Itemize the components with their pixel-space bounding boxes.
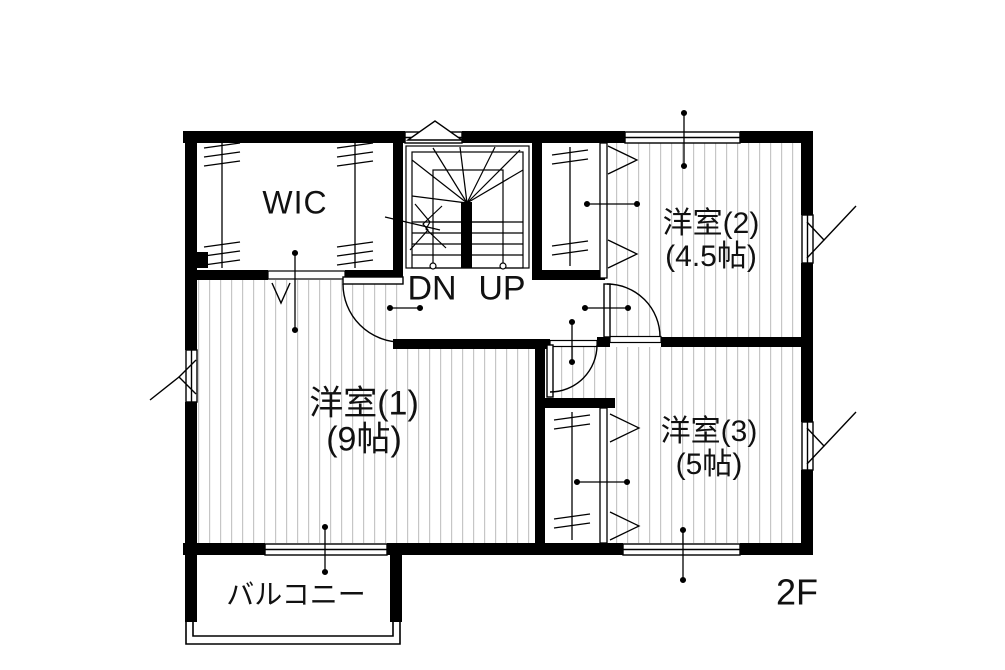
room2-south-wall bbox=[661, 337, 813, 347]
closet2-front bbox=[600, 143, 607, 278]
wall bbox=[801, 470, 813, 555]
casement-arrow-icon bbox=[824, 412, 856, 446]
balcony-railing bbox=[186, 622, 400, 644]
wic-label: WIC bbox=[262, 186, 327, 221]
wic-opening bbox=[268, 271, 345, 279]
measure-dot bbox=[570, 320, 575, 325]
casement-arrow-icon bbox=[150, 377, 179, 400]
pillar bbox=[195, 252, 208, 268]
wall bbox=[185, 131, 197, 350]
closet2-south-wall bbox=[532, 270, 605, 280]
measure-dot bbox=[682, 111, 687, 116]
room1-east-wall bbox=[535, 339, 545, 555]
room3-door-leaf bbox=[547, 345, 553, 397]
roof-vent-triangle-icon bbox=[408, 121, 462, 140]
measure-dot bbox=[293, 251, 298, 256]
hallway-south-wall bbox=[393, 339, 550, 349]
stair-tread bbox=[433, 148, 467, 203]
railing-outer bbox=[186, 622, 400, 644]
measure-dot bbox=[635, 202, 640, 207]
room2-door-threshold bbox=[610, 337, 661, 343]
measure-dot bbox=[682, 164, 687, 169]
room1-label: 洋室(1) bbox=[309, 386, 419, 423]
stair-marker-dot bbox=[430, 263, 436, 269]
balcony-label: バルコニー bbox=[226, 580, 365, 610]
casement-arrow-icon bbox=[824, 206, 856, 240]
wall bbox=[801, 131, 813, 215]
measure-dot bbox=[575, 480, 580, 485]
room2-label: 洋室(2) bbox=[663, 208, 760, 240]
stair-divider-wall bbox=[461, 202, 472, 268]
stair-marker-dot bbox=[500, 263, 506, 269]
measure-dot bbox=[323, 525, 328, 530]
stair-tread bbox=[460, 147, 467, 203]
stairs-east-wall bbox=[532, 131, 542, 280]
room1-door-leaf bbox=[343, 277, 403, 284]
room2-size: (4.5帖) bbox=[665, 241, 757, 273]
room3-size: (5帖) bbox=[676, 449, 743, 481]
measure-dot bbox=[585, 202, 590, 207]
wall bbox=[740, 543, 813, 555]
floorplan-drawing bbox=[0, 0, 1005, 670]
measure-dot bbox=[681, 578, 686, 583]
room3-door-threshold bbox=[550, 341, 597, 347]
room2-door-leaf bbox=[604, 284, 610, 337]
wall bbox=[183, 131, 405, 143]
balcony-right-wall bbox=[390, 555, 402, 622]
floor-label: 2F bbox=[776, 574, 818, 613]
measure-dot bbox=[293, 328, 298, 333]
measure-dot bbox=[323, 570, 328, 575]
wall bbox=[387, 543, 623, 555]
room1-size: (9帖) bbox=[326, 422, 402, 459]
measure-dot bbox=[583, 306, 588, 311]
wall-stub bbox=[597, 337, 610, 347]
measure-dot bbox=[626, 306, 631, 311]
stair-break-mark bbox=[415, 204, 446, 248]
measure-dot bbox=[681, 528, 686, 533]
measure-dot bbox=[388, 306, 393, 311]
stairs-down-label: DN bbox=[407, 271, 456, 308]
stairs-west-wall bbox=[393, 131, 403, 280]
wic-south-wall bbox=[190, 270, 268, 280]
wall bbox=[183, 543, 265, 555]
floorplan-canvas: WIC DN UP 洋室(2) (4.5帖) 洋室(1) (9帖) 洋室(3) … bbox=[0, 0, 1005, 670]
wall bbox=[462, 131, 625, 143]
closet3-front bbox=[600, 408, 607, 543]
railing-inner bbox=[193, 622, 393, 636]
room3-label: 洋室(3) bbox=[661, 416, 758, 448]
measure-dot bbox=[570, 360, 575, 365]
stairs-up-label: UP bbox=[478, 271, 525, 308]
wall bbox=[185, 402, 197, 622]
staircase bbox=[385, 146, 529, 269]
closet3-north-wall bbox=[535, 398, 615, 408]
measure-dot bbox=[625, 480, 630, 485]
